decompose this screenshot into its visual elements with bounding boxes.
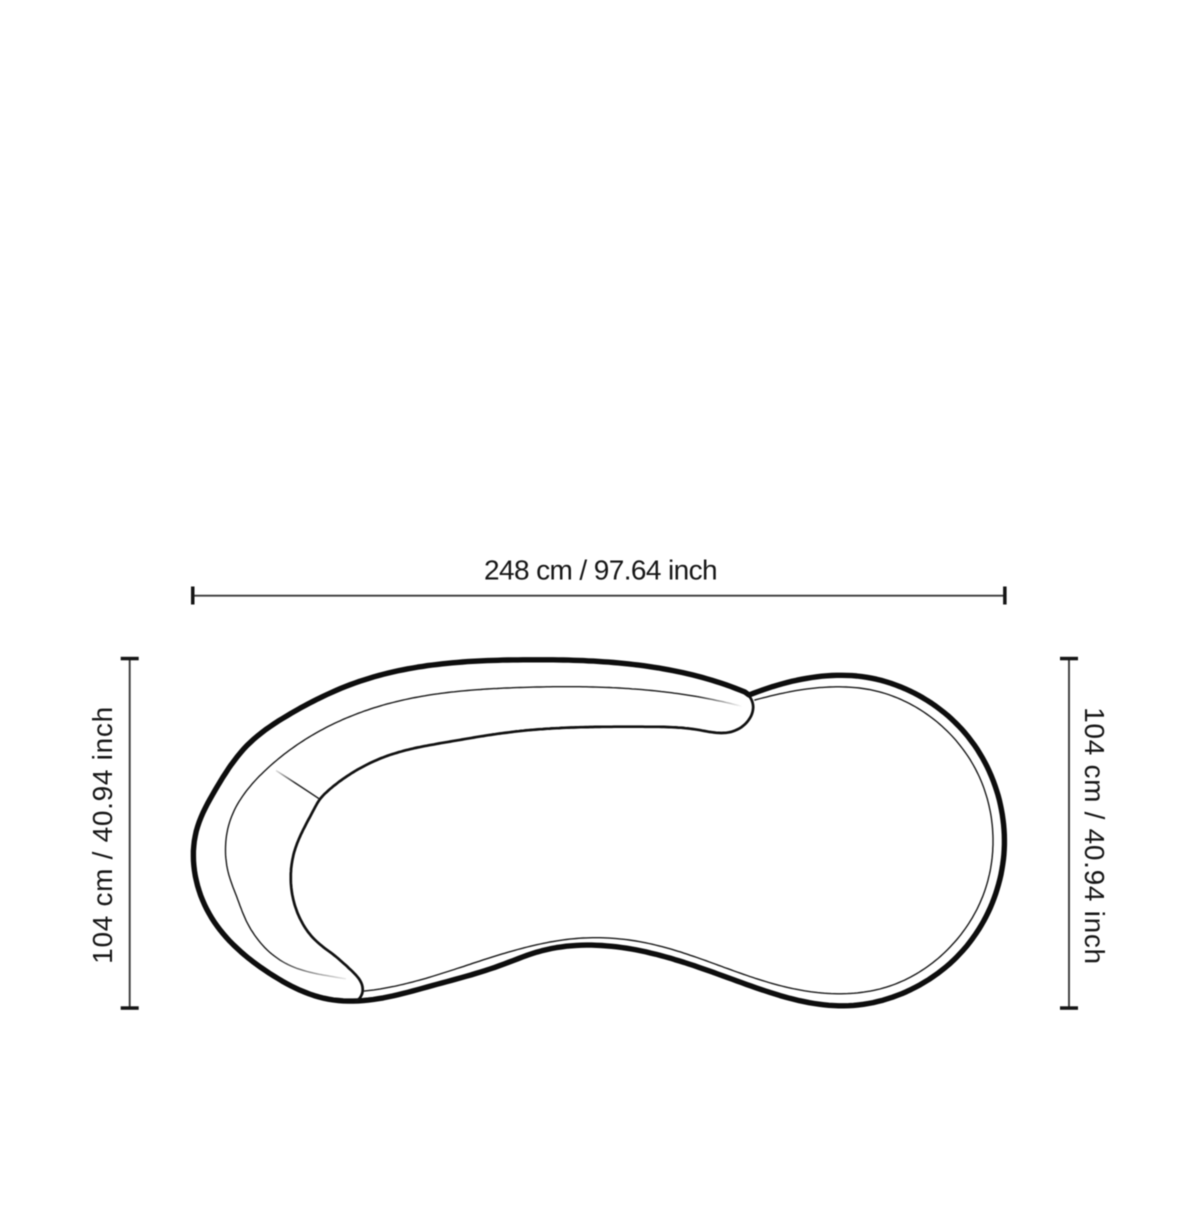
svg-text:104 cm / 40.94 inch: 104 cm / 40.94 inch <box>1079 707 1110 965</box>
svg-text:248 cm / 97.64 inch: 248 cm / 97.64 inch <box>484 554 717 585</box>
svg-text:104 cm / 40.94 inch: 104 cm / 40.94 inch <box>87 706 118 964</box>
